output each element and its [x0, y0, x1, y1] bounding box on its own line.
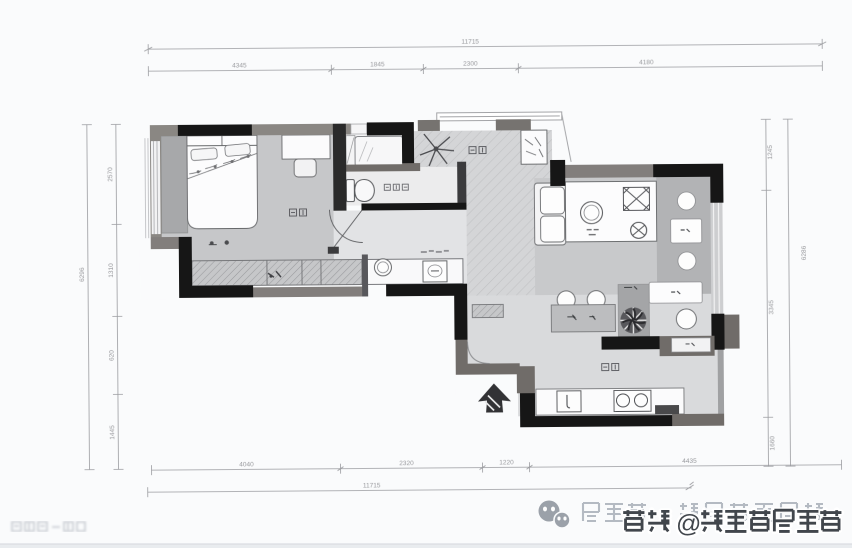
- svg-text:@: @: [676, 510, 701, 538]
- svg-text:3345: 3345: [768, 300, 775, 315]
- svg-text:11715: 11715: [363, 482, 381, 489]
- svg-text:1445: 1445: [109, 425, 116, 440]
- svg-text:6286: 6286: [801, 245, 808, 260]
- svg-text:6296: 6296: [79, 267, 86, 282]
- svg-text:1310: 1310: [108, 263, 115, 278]
- svg-text:11715: 11715: [461, 39, 479, 46]
- svg-text:4180: 4180: [639, 59, 654, 66]
- svg-text:2570: 2570: [107, 167, 114, 182]
- svg-text:1220: 1220: [499, 459, 514, 466]
- svg-text:2300: 2300: [463, 61, 478, 68]
- svg-text:1245: 1245: [767, 145, 774, 160]
- svg-text:4040: 4040: [239, 461, 254, 468]
- svg-text:4345: 4345: [232, 62, 247, 69]
- svg-text:620: 620: [109, 350, 116, 361]
- svg-text:1845: 1845: [370, 61, 385, 68]
- svg-text:1660: 1660: [769, 436, 776, 451]
- svg-text:4435: 4435: [682, 458, 697, 465]
- svg-text:2320: 2320: [399, 460, 414, 467]
